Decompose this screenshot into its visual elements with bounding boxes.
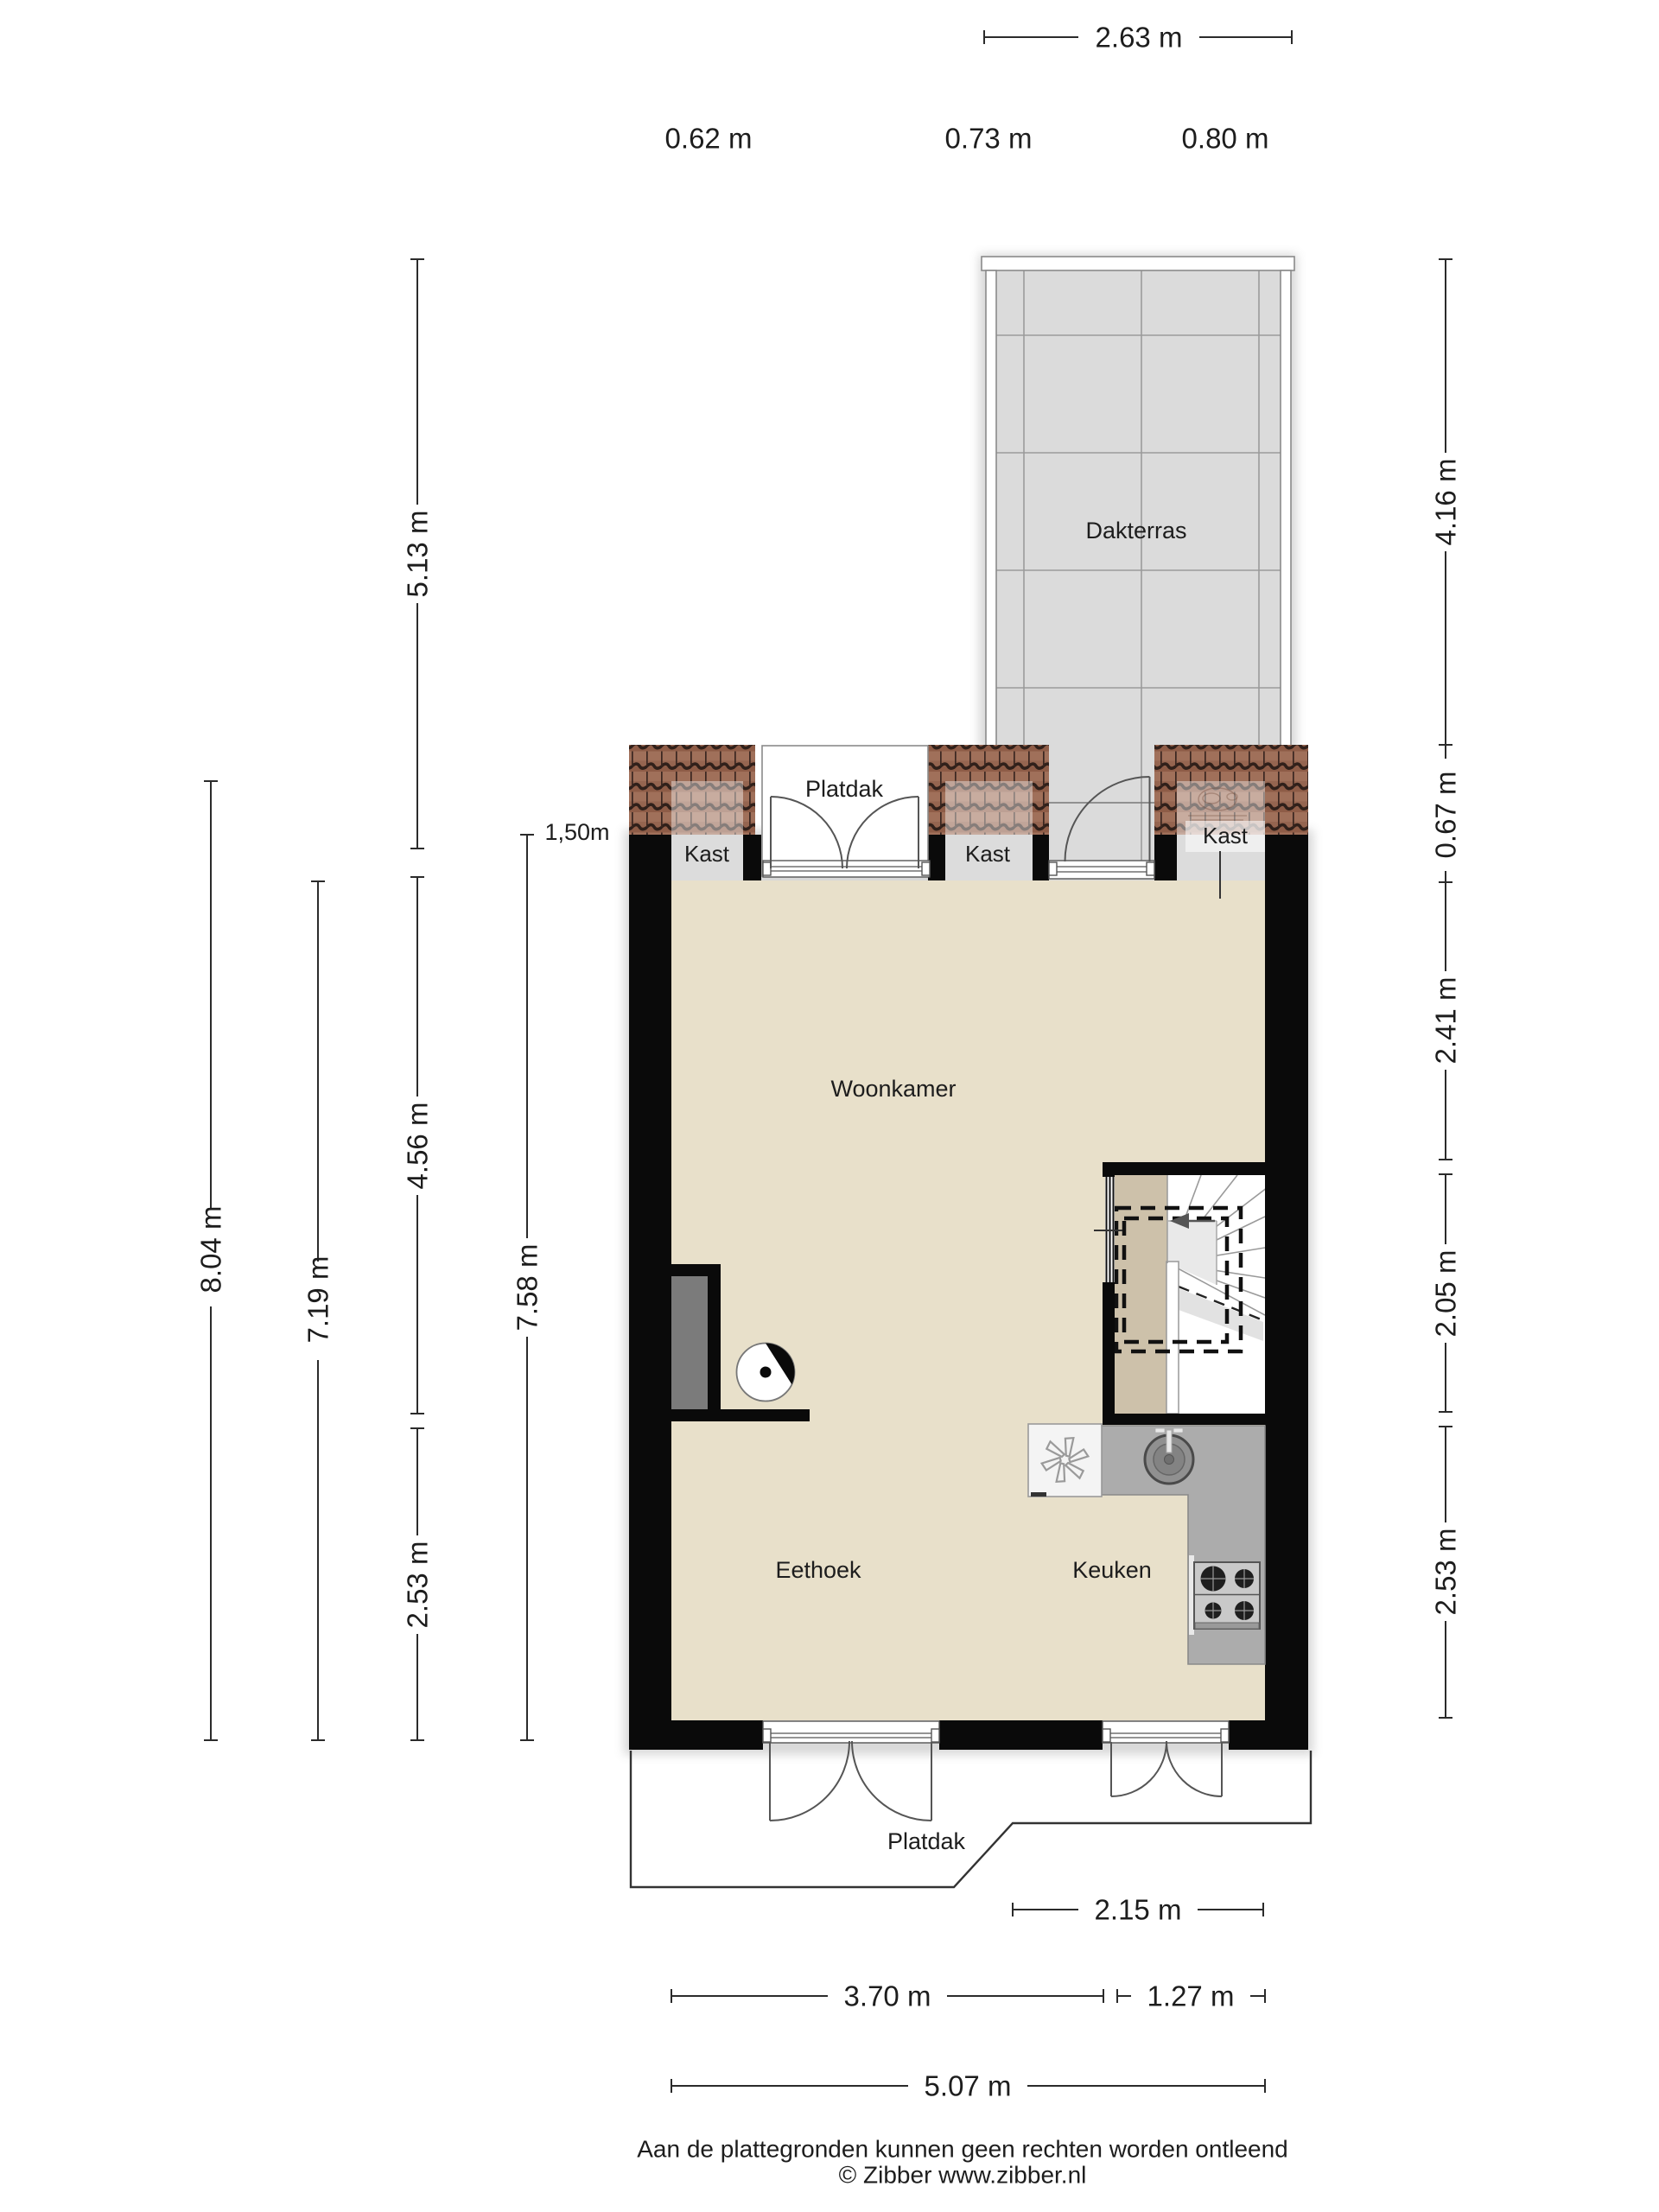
svg-text:Keuken: Keuken: [1072, 1557, 1152, 1583]
svg-text:Kast: Kast: [684, 841, 730, 867]
svg-text:0.73 m: 0.73 m: [945, 123, 1033, 155]
svg-text:© Zibber www.zibber.nl: © Zibber www.zibber.nl: [839, 2162, 1087, 2189]
svg-text:0.80 m: 0.80 m: [1182, 123, 1269, 155]
svg-text:1,50m: 1,50m: [544, 819, 609, 845]
svg-text:8.04 m: 8.04 m: [195, 1206, 227, 1294]
svg-text:Aan de plattegronden kunnen ge: Aan de plattegronden kunnen geen rechten…: [637, 2136, 1287, 2163]
svg-text:2.63 m: 2.63 m: [1096, 22, 1183, 54]
svg-text:Kast: Kast: [965, 841, 1011, 867]
svg-text:2.05 m: 2.05 m: [1430, 1250, 1462, 1338]
svg-text:5.07 m: 5.07 m: [925, 2070, 1012, 2102]
svg-text:Kast: Kast: [1203, 823, 1249, 849]
svg-text:Platdak: Platdak: [805, 776, 884, 802]
svg-text:Dakterras: Dakterras: [1085, 518, 1186, 543]
svg-text:2.53 m: 2.53 m: [402, 1541, 434, 1629]
svg-text:Woonkamer: Woonkamer: [830, 1076, 956, 1102]
svg-text:7.58 m: 7.58 m: [512, 1244, 543, 1332]
svg-text:Platdak: Platdak: [887, 1828, 966, 1854]
svg-text:Eethoek: Eethoek: [775, 1557, 861, 1583]
svg-text:0.67 m: 0.67 m: [1430, 772, 1462, 859]
svg-text:1.27 m: 1.27 m: [1147, 1980, 1235, 2012]
svg-text:7.19 m: 7.19 m: [302, 1256, 334, 1344]
svg-text:5.13 m: 5.13 m: [402, 511, 434, 598]
svg-text:4.56 m: 4.56 m: [402, 1103, 434, 1190]
svg-text:3.70 m: 3.70 m: [844, 1980, 931, 2012]
svg-text:4.16 m: 4.16 m: [1430, 459, 1462, 546]
svg-text:2.41 m: 2.41 m: [1430, 977, 1462, 1065]
svg-text:2.15 m: 2.15 m: [1095, 1894, 1182, 1926]
svg-text:2.53 m: 2.53 m: [1430, 1529, 1462, 1616]
svg-text:0.62 m: 0.62 m: [665, 123, 753, 155]
